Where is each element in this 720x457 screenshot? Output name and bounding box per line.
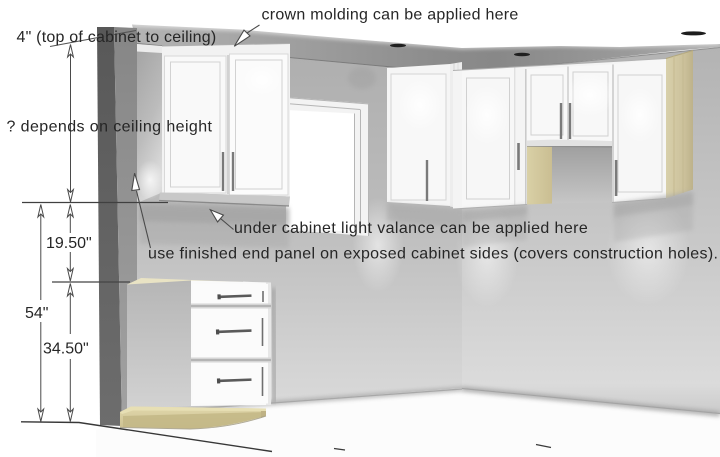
svg-text:under cabinet light valance ca: under cabinet light valance can be appli…	[234, 220, 588, 237]
svg-text:34.50": 34.50"	[43, 341, 89, 358]
svg-text:19.50": 19.50"	[46, 235, 92, 252]
svg-text:54": 54"	[25, 305, 48, 322]
svg-text:use finished end panel on expo: use finished end panel on exposed cabine…	[148, 246, 718, 263]
svg-text:crown molding can be applied h: crown molding can be applied here	[262, 7, 519, 24]
svg-text:? depends on ceiling height: ? depends on ceiling height	[7, 119, 213, 136]
svg-text:4" (top of cabinet to ceiling): 4" (top of cabinet to ceiling)	[17, 29, 217, 46]
